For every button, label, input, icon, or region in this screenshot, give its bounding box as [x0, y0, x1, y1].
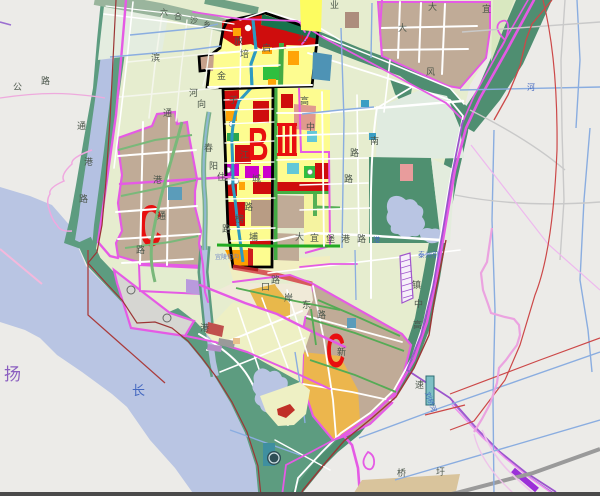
svg-text:风: 风	[426, 67, 435, 77]
svg-text:圩: 圩	[436, 466, 445, 477]
svg-text:新: 新	[337, 346, 346, 357]
svg-text:河: 河	[189, 87, 198, 98]
svg-text:子: 子	[229, 95, 238, 105]
svg-text:港: 港	[200, 322, 209, 333]
svg-text:放: 放	[234, 35, 243, 46]
svg-text:桥: 桥	[397, 467, 406, 478]
svg-text:宜: 宜	[310, 232, 319, 243]
svg-text:镇: 镇	[412, 279, 421, 290]
svg-text:春: 春	[204, 142, 213, 153]
svg-text:培: 培	[240, 48, 249, 59]
svg-text:速: 速	[415, 380, 424, 390]
svg-text:港: 港	[153, 174, 162, 185]
svg-text:港: 港	[341, 233, 350, 244]
svg-text:路: 路	[271, 274, 280, 285]
svg-text:阳: 阳	[209, 161, 218, 171]
svg-text:泰州引: 泰州引	[418, 250, 439, 259]
svg-text:路: 路	[136, 244, 145, 255]
svg-text:堡: 堡	[326, 233, 335, 244]
svg-text:城: 城	[252, 174, 261, 184]
svg-text:路: 路	[222, 223, 231, 234]
svg-text:公: 公	[13, 82, 22, 92]
svg-text:大: 大	[295, 231, 304, 242]
svg-text:河: 河	[527, 82, 535, 92]
svg-text:路: 路	[350, 147, 359, 158]
svg-text:长: 长	[132, 383, 145, 398]
svg-text:住: 住	[217, 171, 226, 182]
svg-text:榜: 榜	[235, 213, 244, 224]
svg-text:乡: 乡	[203, 20, 211, 29]
svg-text:大: 大	[398, 22, 407, 33]
svg-text:东: 东	[302, 299, 311, 310]
svg-text:南: 南	[370, 135, 379, 146]
svg-text:宜: 宜	[482, 3, 491, 14]
svg-text:北: 北	[298, 33, 307, 43]
svg-text:中: 中	[414, 298, 423, 309]
svg-text:路: 路	[344, 173, 353, 184]
svg-text:江: 江	[240, 150, 249, 160]
svg-text:滨: 滨	[151, 52, 160, 63]
svg-text:港: 港	[84, 156, 93, 167]
svg-text:港: 港	[373, 235, 380, 244]
svg-text:业: 业	[330, 0, 339, 10]
svg-text:高: 高	[300, 95, 309, 106]
svg-text:启: 启	[262, 42, 271, 53]
svg-text:扬: 扬	[4, 365, 21, 384]
svg-text:向: 向	[197, 98, 206, 109]
svg-text:金: 金	[217, 70, 226, 81]
svg-text:路: 路	[41, 75, 50, 86]
svg-text:合: 合	[174, 11, 182, 21]
svg-text:路: 路	[357, 233, 366, 244]
svg-text:路: 路	[244, 201, 253, 212]
svg-text:通: 通	[157, 211, 166, 221]
svg-text:路: 路	[317, 309, 326, 320]
svg-text:大: 大	[428, 1, 437, 12]
svg-text:通: 通	[77, 121, 86, 131]
svg-text:埔: 埔	[249, 231, 258, 242]
svg-text:通: 通	[163, 108, 172, 118]
svg-text:六: 六	[160, 7, 168, 17]
svg-text:岸: 岸	[284, 293, 293, 303]
svg-text:路: 路	[79, 193, 88, 204]
svg-text:中: 中	[306, 121, 315, 132]
svg-text:口: 口	[261, 282, 270, 292]
svg-text:宜陵甸沟: 宜陵甸沟	[215, 253, 239, 261]
svg-text:高: 高	[413, 319, 422, 330]
svg-text:沙: 沙	[190, 16, 198, 25]
